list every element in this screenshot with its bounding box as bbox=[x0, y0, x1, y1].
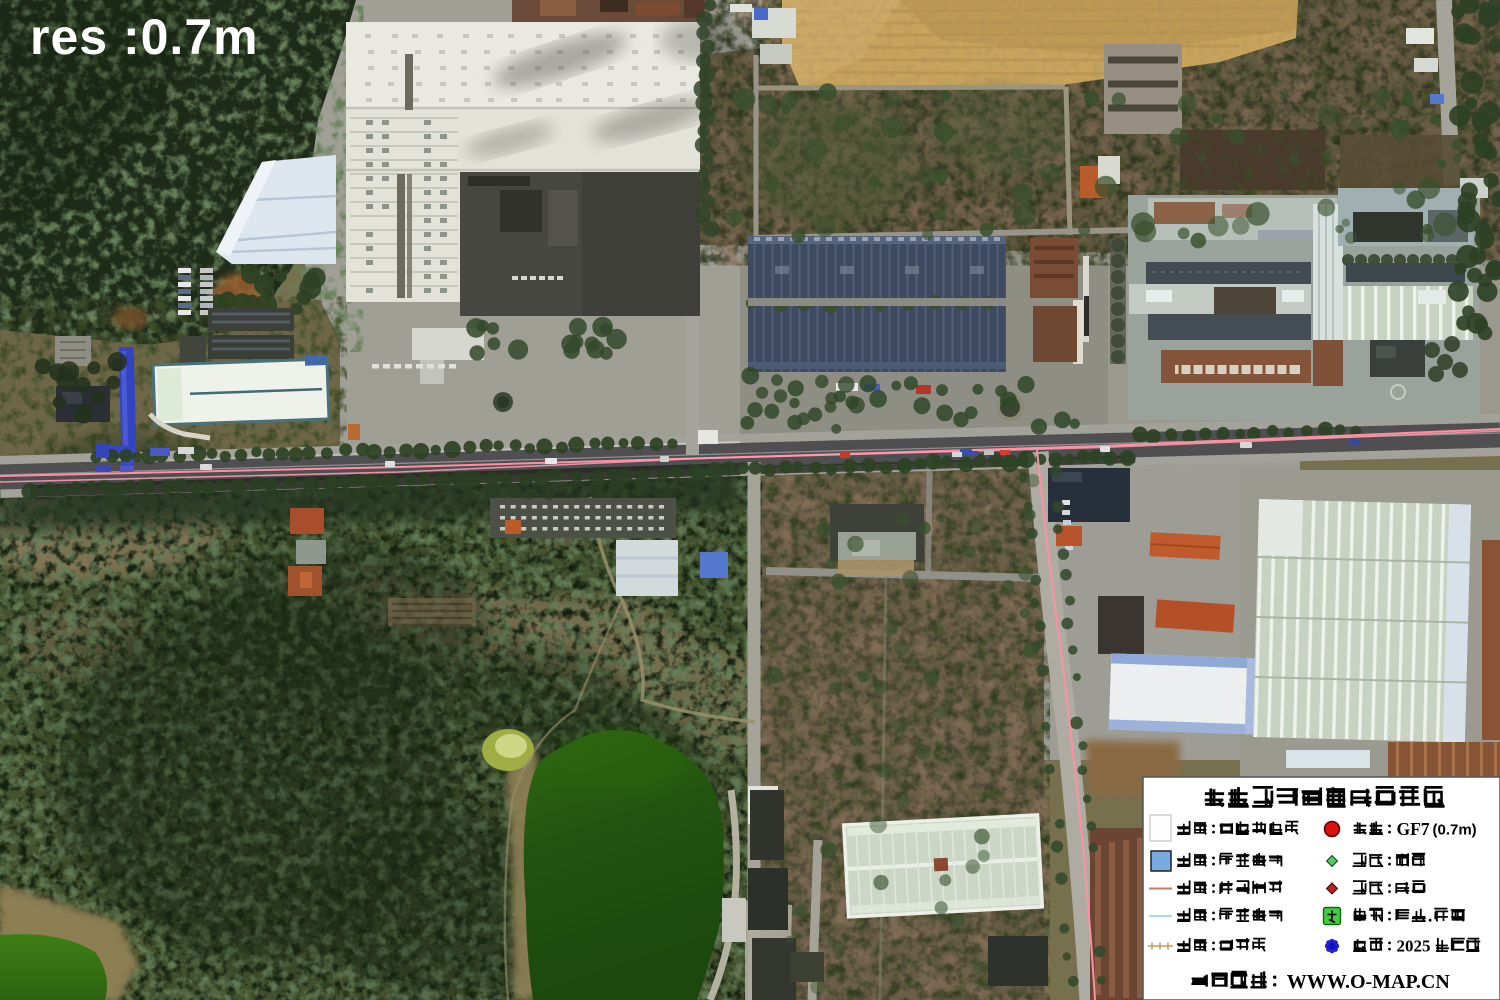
svg-text:GF7: GF7 bbox=[1397, 819, 1430, 839]
svg-text:WWW.O-MAP.CN: WWW.O-MAP.CN bbox=[1287, 971, 1451, 993]
svg-text:res :0.7m: res :0.7m bbox=[30, 9, 259, 65]
svg-text:2025: 2025 bbox=[1397, 937, 1431, 956]
svg-text:(0.7m): (0.7m) bbox=[1433, 822, 1477, 839]
